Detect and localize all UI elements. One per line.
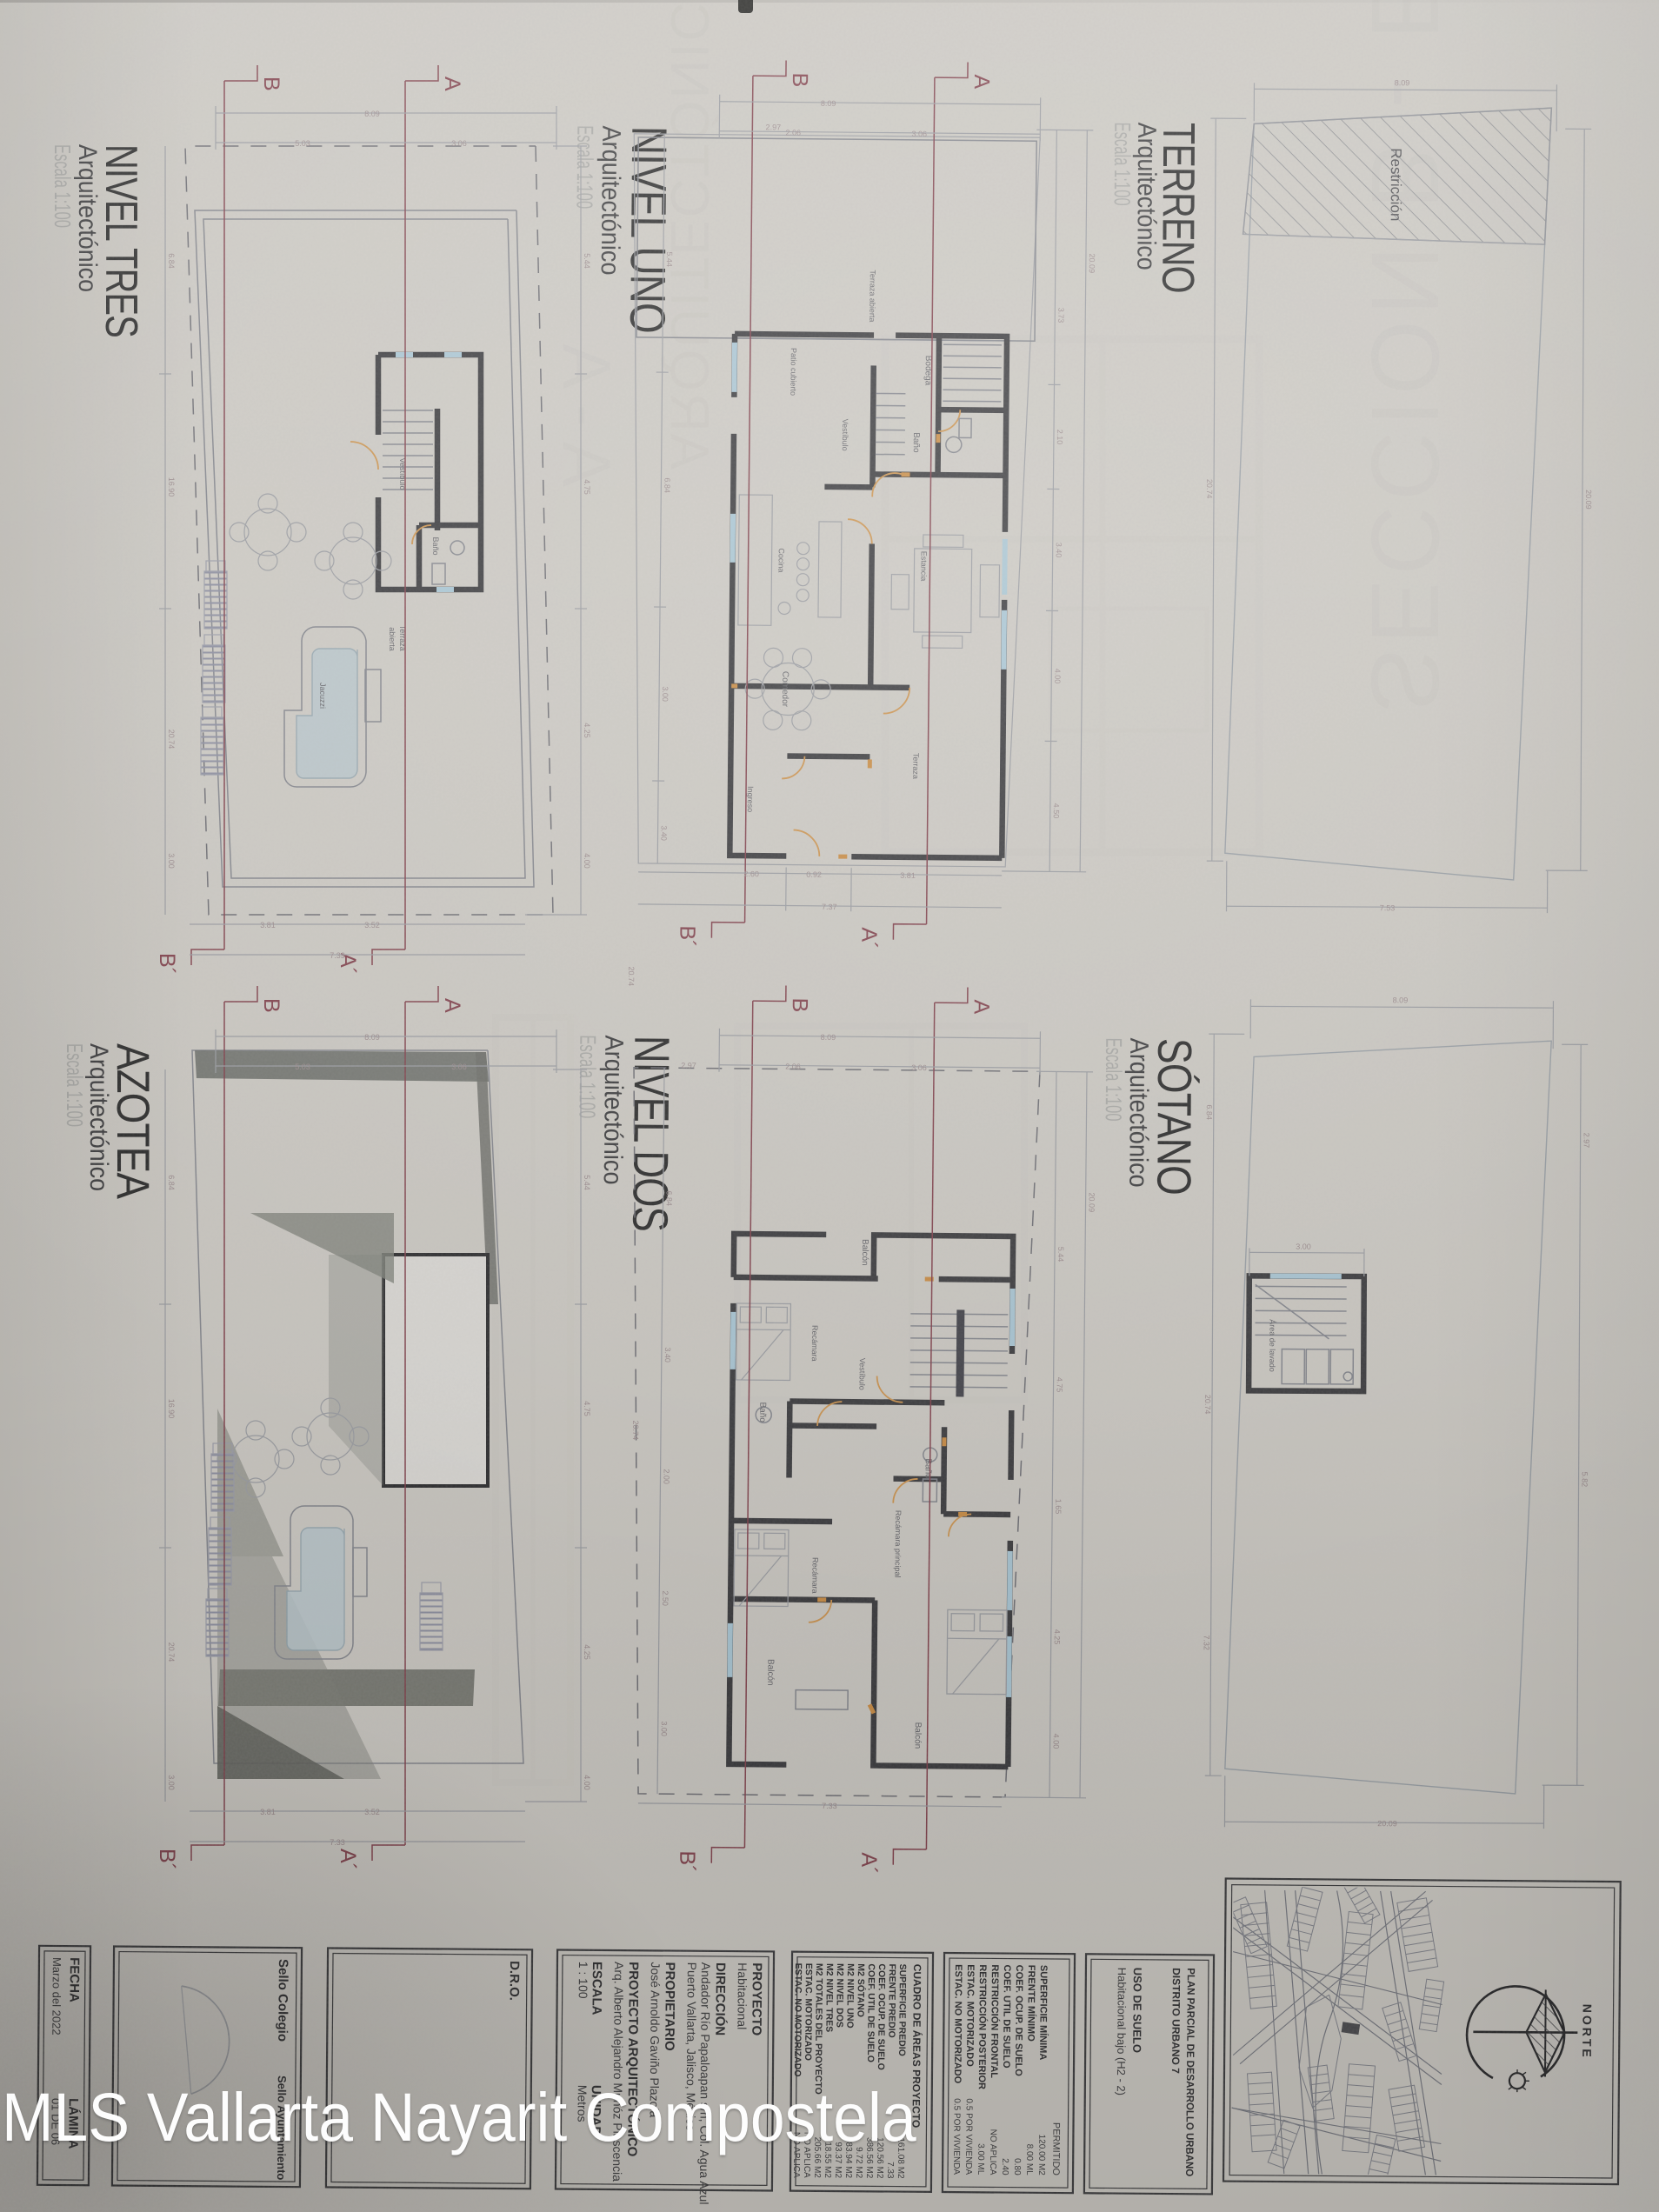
- svg-text:ESTAC. NO MOTORIZADO: ESTAC. NO MOTORIZADO: [792, 1963, 803, 2077]
- svg-text:4.00: 4.00: [1053, 669, 1062, 684]
- svg-text:20.74: 20.74: [1205, 479, 1214, 499]
- svg-text:7.33: 7.33: [330, 951, 345, 960]
- svg-text:4.25: 4.25: [1053, 1629, 1062, 1645]
- svg-text:5.82: 5.82: [1581, 1472, 1589, 1488]
- svg-text:B´: B´: [675, 925, 699, 947]
- svg-text:B: B: [788, 997, 812, 1012]
- svg-text:5.44: 5.44: [665, 251, 674, 267]
- svg-text:3.06: 3.06: [451, 139, 467, 148]
- svg-text:120.00 M2: 120.00 M2: [1036, 2135, 1046, 2176]
- svg-text:B´: B´: [675, 1850, 699, 1872]
- svg-text:20.09: 20.09: [1087, 1193, 1096, 1213]
- svg-text:0.92: 0.92: [806, 870, 822, 879]
- svg-text:Escala 1:100: Escala 1:100: [62, 1043, 88, 1127]
- svg-text:Habitacional: Habitacional: [735, 1962, 750, 2029]
- svg-text:Baño: Baño: [757, 1402, 767, 1422]
- svg-text:6.84: 6.84: [167, 253, 176, 269]
- svg-text:SUPERFICIE MÍNIMA: SUPERFICIE MÍNIMA: [1037, 1965, 1049, 2061]
- svg-text:4.75: 4.75: [583, 1401, 591, 1416]
- svg-text:4.50: 4.50: [1052, 803, 1061, 819]
- svg-text:2.06: 2.06: [785, 1062, 801, 1070]
- svg-text:20.74: 20.74: [167, 1642, 176, 1662]
- svg-text:NO APLICA: NO APLICA: [988, 2129, 997, 2175]
- svg-text:20.74: 20.74: [627, 966, 636, 986]
- svg-text:Arquitectónico: Arquitectónico: [596, 125, 626, 275]
- svg-text:A: A: [440, 77, 464, 91]
- svg-text:SUPERFICIE PREDIO: SUPERFICIE PREDIO: [896, 1964, 908, 2056]
- svg-text:Área de lavado: Área de lavado: [1268, 1319, 1276, 1372]
- svg-text:Arquitectónico: Arquitectónico: [73, 144, 102, 292]
- svg-text:A´: A´: [336, 1849, 360, 1870]
- svg-text:4.00: 4.00: [1052, 1734, 1061, 1749]
- svg-text:COEF. OCUP. DE SUELO: COEF. OCUP. DE SUELO: [876, 1963, 887, 2069]
- svg-text:M2 NIVEL UNO: M2 NIVEL UNO: [844, 1963, 856, 2029]
- svg-text:3.06: 3.06: [911, 130, 927, 138]
- svg-text:2.06: 2.06: [785, 128, 801, 137]
- svg-text:M2 SÓTANO: M2 SÓTANO: [855, 1963, 866, 2017]
- svg-text:8.09: 8.09: [821, 99, 836, 108]
- svg-text:FECHA: FECHA: [67, 1957, 82, 2002]
- svg-text:5.44: 5.44: [583, 1175, 591, 1190]
- svg-text:3.52: 3.52: [364, 1808, 380, 1816]
- svg-text:3.52: 3.52: [364, 921, 380, 929]
- svg-text:Patio cubierto: Patio cubierto: [789, 348, 798, 396]
- svg-text:Marzo del 2022: Marzo del 2022: [50, 1957, 63, 2035]
- svg-text:Arquitectónico: Arquitectónico: [1123, 1038, 1153, 1188]
- svg-text:PLAN PARCIAL DE DESARROLLO URB: PLAN PARCIAL DE DESARROLLO URBANO: [1183, 1968, 1197, 2176]
- svg-text:8.09: 8.09: [1393, 996, 1409, 1004]
- svg-text:16.90: 16.90: [167, 477, 176, 497]
- svg-text:7.33: 7.33: [330, 1838, 345, 1847]
- svg-text:A´: A´: [856, 927, 881, 949]
- svg-text:20.74: 20.74: [167, 730, 176, 750]
- svg-text:Arquitectónico: Arquitectónico: [598, 1035, 629, 1184]
- svg-text:Balcón: Balcón: [765, 1659, 775, 1686]
- svg-text:20.09: 20.09: [1584, 490, 1593, 510]
- svg-text:16.90: 16.90: [167, 1399, 176, 1419]
- svg-text:M2 NIVEL TRES: M2 NIVEL TRES: [823, 1963, 835, 2032]
- svg-text:8.09: 8.09: [1395, 78, 1410, 87]
- svg-text:Escala 1:100: Escala 1:100: [574, 1035, 601, 1118]
- svg-text:ESTAC. MOTORIZADO: ESTAC. MOTORIZADO: [803, 1963, 814, 2061]
- svg-text:Escala 1:100: Escala 1:100: [1109, 123, 1136, 206]
- svg-text:RESTRICCIÓN POSTERIOR: RESTRICCIÓN POSTERIOR: [976, 1964, 989, 2089]
- svg-text:8.09: 8.09: [364, 110, 380, 118]
- svg-text:B´: B´: [155, 953, 179, 975]
- svg-text:FRENTE PREDIO: FRENTE PREDIO: [886, 1963, 897, 2037]
- svg-text:4.25: 4.25: [583, 1644, 591, 1660]
- svg-text:2.00: 2.00: [662, 1469, 670, 1484]
- svg-text:Habitacional bajo (H2 - 2): Habitacional bajo (H2 - 2): [1115, 1968, 1129, 2096]
- svg-text:3.81: 3.81: [260, 1808, 276, 1816]
- svg-text:Escala 1:100: Escala 1:100: [1101, 1037, 1128, 1121]
- svg-text:Restricción: Restricción: [1388, 148, 1404, 221]
- svg-text:6.84: 6.84: [1205, 1104, 1214, 1120]
- svg-text:20.74: 20.74: [1203, 1395, 1212, 1415]
- svg-text:Recámara: Recámara: [810, 1325, 819, 1362]
- svg-text:Vestíbulo: Vestíbulo: [841, 419, 849, 451]
- svg-text:4.00: 4.00: [583, 853, 591, 869]
- svg-text:20.09: 20.09: [1088, 254, 1096, 274]
- svg-text:2.97: 2.97: [1582, 1133, 1591, 1149]
- svg-text:Sello Colegio: Sello Colegio: [275, 1959, 290, 2042]
- svg-text:3.00: 3.00: [660, 1721, 669, 1736]
- svg-text:NIVEL TRES: NIVEL TRES: [96, 144, 146, 337]
- svg-text:2.40: 2.40: [1000, 2158, 1009, 2175]
- svg-text:20.09: 20.09: [1377, 1819, 1397, 1828]
- svg-text:ESCALA: ESCALA: [589, 1962, 603, 2015]
- svg-text:2.10: 2.10: [1056, 430, 1064, 445]
- svg-text:Baño: Baño: [911, 432, 921, 453]
- svg-text:USO DE SUELO: USO DE SUELO: [1130, 1968, 1144, 2053]
- svg-text:5.44: 5.44: [1056, 1247, 1065, 1263]
- svg-text:8.09: 8.09: [364, 1033, 380, 1042]
- svg-text:Vestíbulo: Vestíbulo: [857, 1358, 866, 1390]
- svg-text:SÓTANO: SÓTANO: [1147, 1038, 1202, 1195]
- svg-text:NIVEL UNO: NIVEL UNO: [619, 126, 676, 334]
- svg-text:3.06: 3.06: [911, 1063, 927, 1072]
- svg-text:Escala 1:100: Escala 1:100: [50, 144, 76, 228]
- svg-text:3.40: 3.40: [1055, 543, 1063, 558]
- svg-text:3.00: 3.00: [1296, 1243, 1311, 1251]
- svg-text:4.75: 4.75: [1055, 1377, 1063, 1393]
- svg-text:COEF. UTIL DE SUELO: COEF. UTIL DE SUELO: [1001, 1965, 1012, 2069]
- svg-text:4.25: 4.25: [583, 723, 591, 738]
- svg-text:5.44: 5.44: [583, 253, 591, 269]
- svg-text:3.40: 3.40: [659, 825, 668, 841]
- svg-text:Escala 1:100: Escala 1:100: [571, 125, 598, 209]
- svg-text:6.84: 6.84: [663, 477, 671, 493]
- svg-text:A: A: [969, 999, 994, 1014]
- svg-text:NORTE: NORTE: [1580, 2004, 1595, 2060]
- svg-text:3.00: 3.00: [167, 1775, 176, 1790]
- svg-text:Terraza abierta: Terraza abierta: [868, 270, 877, 322]
- svg-text:Terraza: Terraza: [911, 753, 920, 779]
- svg-text:D.R.O.: D.R.O.: [507, 1961, 522, 2001]
- svg-text:2.50: 2.50: [661, 1590, 670, 1606]
- svg-text:8.00 ML: 8.00 ML: [1024, 2144, 1034, 2176]
- svg-text:3.73: 3.73: [1056, 308, 1065, 323]
- svg-text:1.65: 1.65: [1054, 1499, 1063, 1515]
- svg-text:4.75: 4.75: [583, 479, 591, 495]
- svg-text:FRENTE MÍNIMO: FRENTE MÍNIMO: [1025, 1965, 1037, 2042]
- svg-text:ESTAC. MOTORIZADO: ESTAC. MOTORIZADO: [964, 1964, 976, 2067]
- svg-text:Comedor: Comedor: [780, 671, 790, 708]
- svg-text:A´: A´: [856, 1852, 881, 1874]
- svg-text:Balcón: Balcón: [860, 1239, 869, 1266]
- svg-text:Jacuzzi: Jacuzzi: [318, 683, 327, 709]
- svg-text:DIRECCIÓN: DIRECCIÓN: [712, 1962, 729, 2035]
- svg-text:PROYECTO: PROYECTO: [749, 1962, 764, 2035]
- svg-text:Recámara principal: Recámara principal: [893, 1510, 903, 1578]
- svg-text:ESTAC. NO MOTORIZADO: ESTAC. NO MOTORIZADO: [952, 1964, 963, 2084]
- svg-text:2.97: 2.97: [681, 1061, 696, 1069]
- svg-text:COEF. OCUP. DE SUELO: COEF. OCUP. DE SUELO: [1013, 1965, 1024, 2077]
- svg-text:PERMITIDO: PERMITIDO: [1050, 2122, 1061, 2176]
- svg-text:3.00 ML: 3.00 ML: [976, 2143, 985, 2175]
- svg-text:20.74: 20.74: [631, 1421, 640, 1441]
- svg-text:Balcón: Balcón: [913, 1722, 923, 1749]
- svg-text:0.80: 0.80: [1012, 2158, 1022, 2175]
- svg-text:SECCION B - B .: SECCION B - B .: [1351, 0, 1458, 713]
- svg-text:0.5 POR VIVIENDA: 0.5 POR VIVIENDA: [963, 2098, 974, 2175]
- svg-text:A: A: [969, 74, 994, 89]
- svg-text:AZOTEA: AZOTEA: [107, 1043, 158, 1199]
- svg-text:7.33: 7.33: [885, 2162, 895, 2179]
- svg-text:8.09: 8.09: [821, 1033, 836, 1042]
- svg-text:7.53: 7.53: [1380, 903, 1396, 912]
- svg-text:DISTRITO URBANO 7: DISTRITO URBANO 7: [1169, 1968, 1183, 2074]
- svg-text:3.06: 3.06: [451, 1063, 467, 1071]
- svg-text:RESTRICCIÓN FRONTAL: RESTRICCIÓN FRONTAL: [989, 1964, 1001, 2078]
- svg-text:B: B: [259, 77, 283, 91]
- svg-text:5.03: 5.03: [295, 139, 310, 148]
- svg-text:2.60: 2.60: [743, 869, 759, 878]
- svg-text:3.40: 3.40: [663, 1347, 672, 1363]
- svg-text:3.81: 3.81: [900, 871, 916, 880]
- svg-text:COEF. UTIL DE SUELO: COEF. UTIL DE SUELO: [865, 1963, 876, 2062]
- svg-text:Recámara: Recámara: [810, 1557, 819, 1594]
- svg-text:B: B: [259, 998, 283, 1013]
- svg-text:Arquitectónico: Arquitectónico: [84, 1043, 113, 1191]
- svg-text:Estancia: Estancia: [919, 551, 928, 582]
- svg-text:B´: B´: [155, 1849, 179, 1870]
- svg-text:4.00: 4.00: [583, 1775, 591, 1790]
- svg-text:6.84: 6.84: [167, 1175, 176, 1190]
- svg-text:0.5 POR VIVIENDA: 0.5 POR VIVIENDA: [951, 2098, 962, 2175]
- svg-text:3.00: 3.00: [661, 686, 670, 702]
- svg-text:3.00: 3.00: [167, 853, 176, 869]
- svg-text:7.32: 7.32: [1203, 1635, 1211, 1650]
- svg-text:Baño: Baño: [923, 1458, 933, 1479]
- svg-text:Cocina: Cocina: [776, 548, 785, 572]
- svg-text:1 : 100: 1 : 100: [576, 1962, 590, 1999]
- svg-text:Terraza abierta: Terraza abierta: [388, 625, 407, 654]
- svg-text:M2 NIVEL DOS: M2 NIVEL DOS: [834, 1963, 845, 2028]
- svg-text:B: B: [788, 72, 812, 87]
- svg-text:A - A: A - A: [549, 343, 625, 487]
- svg-text:3.81: 3.81: [260, 921, 276, 929]
- svg-text:PROPIETARIO: PROPIETARIO: [662, 1962, 677, 2051]
- svg-text:7.33: 7.33: [822, 1802, 837, 1810]
- svg-text:5.03: 5.03: [295, 1063, 310, 1071]
- svg-text:6.84: 6.84: [665, 1190, 674, 1206]
- svg-text:Ingreso: Ingreso: [746, 786, 755, 812]
- svg-text:2.97: 2.97: [766, 123, 782, 131]
- svg-text:A: A: [440, 998, 464, 1013]
- svg-text:Baño: Baño: [431, 536, 440, 555]
- svg-text:7.37: 7.37: [822, 903, 837, 911]
